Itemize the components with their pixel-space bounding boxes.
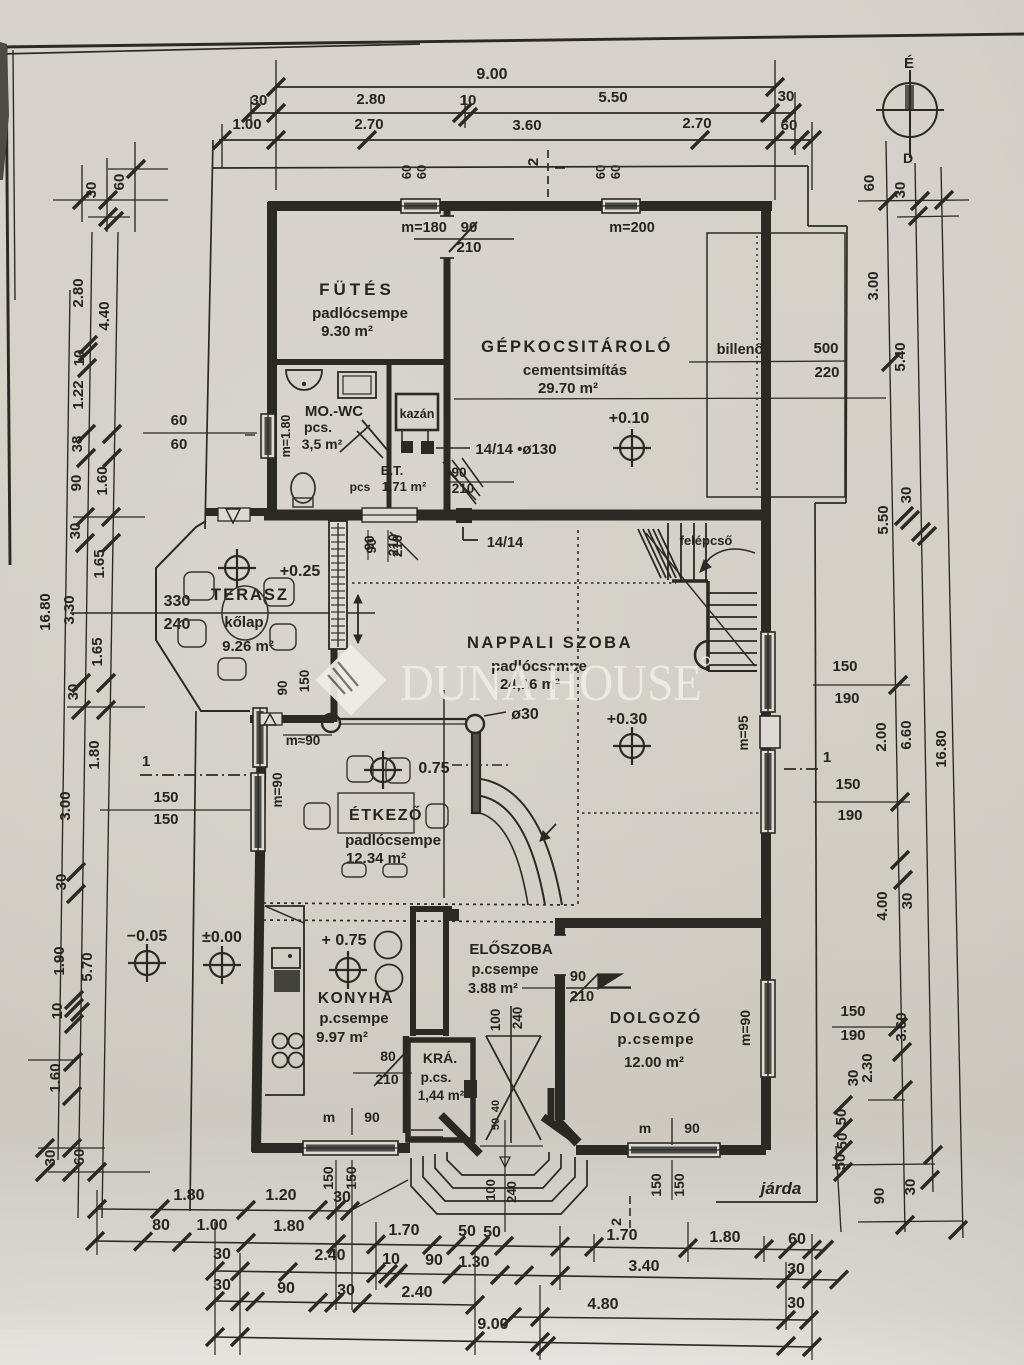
- svg-text:190: 190: [837, 807, 862, 824]
- svg-text:É: É: [904, 55, 914, 72]
- svg-text:60: 60: [111, 174, 128, 191]
- svg-text:DOLGOZÓ: DOLGOZÓ: [610, 1009, 702, 1027]
- svg-text:padlócsempe: padlócsempe: [345, 832, 441, 849]
- svg-text:1.22: 1.22: [70, 380, 87, 409]
- svg-text:90: 90: [364, 538, 379, 553]
- svg-text:12.00 m²: 12.00 m²: [624, 1054, 684, 1071]
- svg-text:330: 330: [164, 593, 191, 610]
- svg-text:1.80: 1.80: [709, 1229, 740, 1246]
- svg-text:p.csempe: p.csempe: [319, 1010, 388, 1027]
- svg-text:150: 150: [832, 658, 857, 675]
- svg-text:KRÁ.: KRÁ.: [423, 1050, 457, 1066]
- svg-text:9.30 m²: 9.30 m²: [321, 323, 373, 340]
- svg-text:MO.-WC: MO.-WC: [305, 403, 363, 420]
- svg-text:210: 210: [456, 239, 481, 256]
- svg-text:kazán: kazán: [400, 407, 435, 421]
- svg-text:járda: járda: [759, 1179, 802, 1198]
- svg-text:2.70: 2.70: [682, 115, 711, 132]
- svg-text:1.80: 1.80: [273, 1218, 304, 1235]
- svg-text:1,71 m²: 1,71 m²: [382, 479, 427, 494]
- svg-text:m: m: [323, 1109, 335, 1125]
- svg-text:1.60: 1.60: [94, 466, 111, 495]
- svg-text:90: 90: [461, 219, 478, 236]
- svg-text:pcs.: pcs.: [304, 419, 332, 435]
- svg-text:16.80: 16.80: [37, 593, 54, 631]
- svg-text:30: 30: [787, 1295, 805, 1312]
- svg-text:m=1.80: m=1.80: [279, 415, 293, 458]
- svg-text:30: 30: [42, 1150, 59, 1167]
- svg-text:150: 150: [343, 1166, 359, 1190]
- svg-text:50: 50: [490, 1118, 502, 1130]
- svg-text:p.csempe: p.csempe: [472, 962, 539, 978]
- svg-text:30: 30: [902, 1179, 919, 1196]
- svg-text:1.90: 1.90: [51, 946, 68, 975]
- svg-text:500: 500: [813, 340, 838, 357]
- svg-text:+ 0.75: + 0.75: [322, 932, 367, 949]
- svg-text:m=180: m=180: [401, 220, 447, 236]
- svg-text:p.cs.: p.cs.: [421, 1070, 452, 1085]
- svg-text:90: 90: [570, 969, 586, 985]
- svg-text:2.80: 2.80: [356, 91, 385, 108]
- svg-text:3.60: 3.60: [512, 117, 541, 134]
- svg-text:90: 90: [275, 680, 290, 695]
- svg-text:210: 210: [390, 535, 405, 558]
- svg-text:p.csempe: p.csempe: [617, 1031, 694, 1048]
- svg-text:30: 30: [83, 182, 100, 199]
- svg-text:2: 2: [525, 158, 542, 166]
- svg-text:6.60: 6.60: [898, 720, 915, 749]
- svg-text:1,44 m²: 1,44 m²: [418, 1088, 465, 1103]
- svg-text:30: 30: [778, 88, 795, 105]
- svg-text:±0.00: ±0.00: [202, 929, 242, 946]
- svg-text:1.30: 1.30: [458, 1254, 489, 1271]
- svg-text:0.75: 0.75: [418, 760, 449, 777]
- svg-text:+0.10: +0.10: [609, 410, 650, 427]
- svg-text:padlócsempe: padlócsempe: [312, 305, 408, 322]
- svg-text:D: D: [903, 150, 913, 166]
- svg-text:150: 150: [320, 1166, 336, 1190]
- svg-text:felépcső: felépcső: [680, 533, 733, 548]
- svg-text:90: 90: [425, 1252, 443, 1269]
- svg-text:1.20: 1.20: [265, 1187, 296, 1204]
- svg-text:2.40: 2.40: [401, 1284, 432, 1301]
- svg-text:4.00: 4.00: [874, 891, 891, 920]
- svg-text:60: 60: [171, 436, 188, 453]
- svg-text:220: 220: [814, 364, 839, 381]
- svg-text:2.00: 2.00: [873, 722, 890, 751]
- svg-text:3.00: 3.00: [865, 271, 882, 300]
- svg-text:3,5 m²: 3,5 m²: [302, 436, 343, 452]
- svg-text:60: 60: [861, 175, 878, 192]
- svg-text:3.30: 3.30: [61, 595, 78, 624]
- svg-text:150: 150: [153, 789, 178, 806]
- svg-text:29.70 m²: 29.70 m²: [538, 380, 598, 397]
- svg-text:DUNA HOUSE: DUNA HOUSE: [400, 655, 702, 712]
- svg-text:90: 90: [871, 1188, 888, 1205]
- svg-text:3.00: 3.00: [57, 791, 74, 820]
- svg-text:80: 80: [380, 1048, 396, 1064]
- svg-text:−0.05: −0.05: [127, 928, 168, 945]
- svg-text:30: 30: [53, 874, 70, 891]
- svg-text:150: 150: [153, 811, 178, 828]
- svg-text:FÜTÉS: FÜTÉS: [319, 280, 395, 299]
- svg-text:1.65: 1.65: [91, 549, 108, 578]
- svg-text:m≈90: m≈90: [286, 733, 320, 748]
- svg-text:1.00: 1.00: [232, 116, 261, 133]
- svg-text:30: 30: [899, 893, 916, 910]
- svg-text:90: 90: [277, 1280, 295, 1297]
- svg-text:9.97 m²: 9.97 m²: [316, 1029, 368, 1046]
- svg-text:16.80: 16.80: [933, 730, 950, 768]
- svg-text:4.40: 4.40: [96, 301, 113, 330]
- svg-text:2: 2: [608, 1218, 624, 1226]
- svg-text:40: 40: [490, 1100, 502, 1112]
- svg-text:1.80: 1.80: [86, 740, 103, 769]
- svg-text:1.65: 1.65: [89, 637, 106, 666]
- svg-text:50: 50: [458, 1223, 476, 1240]
- svg-text:90: 90: [68, 475, 85, 492]
- svg-text:190: 190: [840, 1027, 865, 1044]
- svg-text:3.40: 3.40: [628, 1258, 659, 1275]
- svg-text:4.80: 4.80: [587, 1296, 618, 1313]
- svg-text:9.00: 9.00: [476, 66, 507, 83]
- svg-text:ÉTKEZŐ: ÉTKEZŐ: [349, 805, 423, 824]
- svg-text:E.T.: E.T.: [381, 463, 403, 478]
- svg-text:240: 240: [510, 1007, 525, 1030]
- svg-text:GÉPKOCSITÁROLÓ: GÉPKOCSITÁROLÓ: [481, 337, 673, 356]
- svg-text:2.70: 2.70: [354, 116, 383, 133]
- svg-text:30: 30: [213, 1246, 231, 1263]
- svg-text:1: 1: [823, 749, 831, 766]
- svg-text:14/14: 14/14: [487, 535, 523, 551]
- svg-text:2.80: 2.80: [70, 278, 87, 307]
- svg-text:1.70: 1.70: [606, 1227, 637, 1244]
- svg-text:ELŐSZOBA: ELŐSZOBA: [469, 940, 553, 958]
- svg-text:30: 30: [898, 487, 915, 504]
- svg-text:1.80: 1.80: [173, 1187, 204, 1204]
- svg-text:m=90: m=90: [737, 1010, 753, 1046]
- svg-text:30: 30: [892, 182, 909, 199]
- svg-text:1: 1: [142, 753, 150, 770]
- svg-text:150: 150: [671, 1173, 687, 1197]
- svg-text:30: 30: [213, 1277, 231, 1294]
- svg-text:240: 240: [504, 1181, 519, 1203]
- svg-text:m: m: [639, 1120, 651, 1136]
- svg-text:NAPPALI SZOBA: NAPPALI SZOBA: [467, 634, 633, 652]
- svg-text:cementsimítás: cementsimítás: [523, 362, 627, 379]
- svg-text:150: 150: [835, 776, 860, 793]
- svg-text:240: 240: [164, 616, 191, 633]
- svg-text:60: 60: [171, 412, 188, 429]
- svg-text:14/14 •ø130: 14/14 •ø130: [475, 441, 556, 458]
- svg-text:1.00: 1.00: [196, 1217, 227, 1234]
- svg-text:1.70: 1.70: [388, 1222, 419, 1239]
- svg-text:pcs: pcs: [350, 480, 371, 494]
- svg-text:10: 10: [49, 1003, 66, 1020]
- svg-text:150: 150: [648, 1173, 664, 1197]
- svg-text:150: 150: [840, 1003, 865, 1020]
- svg-text:m=200: m=200: [609, 220, 655, 236]
- svg-text:m=95: m=95: [736, 715, 751, 750]
- svg-text:TERASZ: TERASZ: [211, 586, 289, 604]
- svg-text:kőlap: kőlap: [224, 614, 263, 631]
- svg-text:30: 30: [845, 1070, 862, 1087]
- svg-text:5.50: 5.50: [875, 505, 892, 534]
- svg-text:+0.30: +0.30: [607, 711, 648, 728]
- svg-text:210: 210: [570, 989, 594, 1005]
- svg-text:3.60: 3.60: [893, 1012, 910, 1041]
- svg-text:80: 80: [152, 1217, 170, 1234]
- svg-text:3.88 m²: 3.88 m²: [468, 981, 518, 997]
- svg-text:KONYHA: KONYHA: [318, 990, 394, 1007]
- svg-text:m=90: m=90: [270, 773, 285, 808]
- svg-text:150: 150: [297, 670, 312, 693]
- svg-text:5.70: 5.70: [79, 952, 96, 981]
- svg-text:100: 100: [483, 1179, 498, 1201]
- svg-text:billenő: billenő: [717, 342, 764, 358]
- svg-text:90: 90: [684, 1120, 700, 1136]
- svg-text:190: 190: [834, 690, 859, 707]
- svg-text:100: 100: [488, 1009, 503, 1032]
- svg-text:90: 90: [364, 1109, 380, 1125]
- svg-text:2.40: 2.40: [314, 1247, 345, 1264]
- svg-text:5.50: 5.50: [598, 89, 627, 106]
- svg-text:1.60: 1.60: [47, 1063, 64, 1092]
